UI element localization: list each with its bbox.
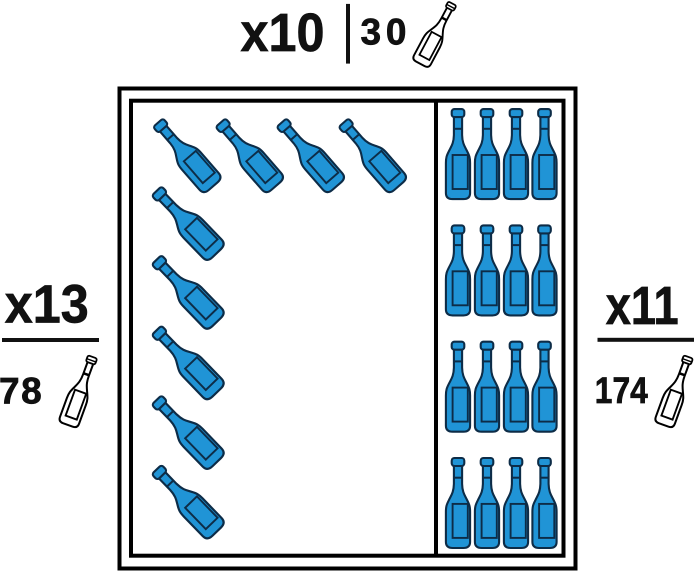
svg-text:174: 174: [595, 370, 648, 411]
svg-text:30: 30: [361, 12, 412, 53]
svg-text:x10: x10: [241, 3, 325, 63]
svg-text:x13: x13: [5, 275, 89, 335]
svg-text:78: 78: [0, 370, 43, 411]
svg-text:x11: x11: [606, 276, 679, 336]
